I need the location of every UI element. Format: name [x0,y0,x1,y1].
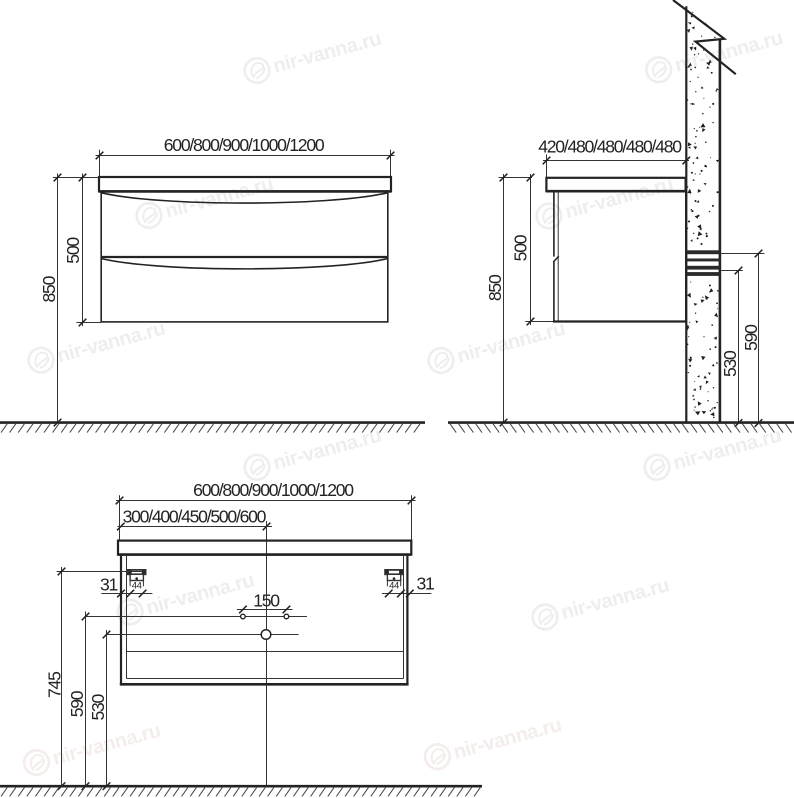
svg-text:850: 850 [39,275,59,302]
svg-text:600/800/900/1000/1200: 600/800/900/1000/1200 [164,135,325,155]
svg-text:600/800/900/1000/1200: 600/800/900/1000/1200 [193,480,354,500]
svg-text:31: 31 [416,574,434,594]
svg-text:850: 850 [485,274,505,301]
svg-text:300/400/450/500/600: 300/400/450/500/600 [123,506,267,526]
svg-text:31: 31 [100,574,118,594]
svg-text:44: 44 [389,581,399,592]
svg-text:500: 500 [511,234,531,261]
svg-text:590: 590 [67,690,87,717]
svg-text:745: 745 [44,671,64,698]
svg-text:530: 530 [720,350,740,377]
svg-text:590: 590 [741,324,761,351]
svg-text:420/480/480/480/480: 420/480/480/480/480 [538,136,682,156]
svg-text:530: 530 [88,693,108,720]
svg-text:150: 150 [253,591,280,611]
svg-text:500: 500 [63,237,83,264]
